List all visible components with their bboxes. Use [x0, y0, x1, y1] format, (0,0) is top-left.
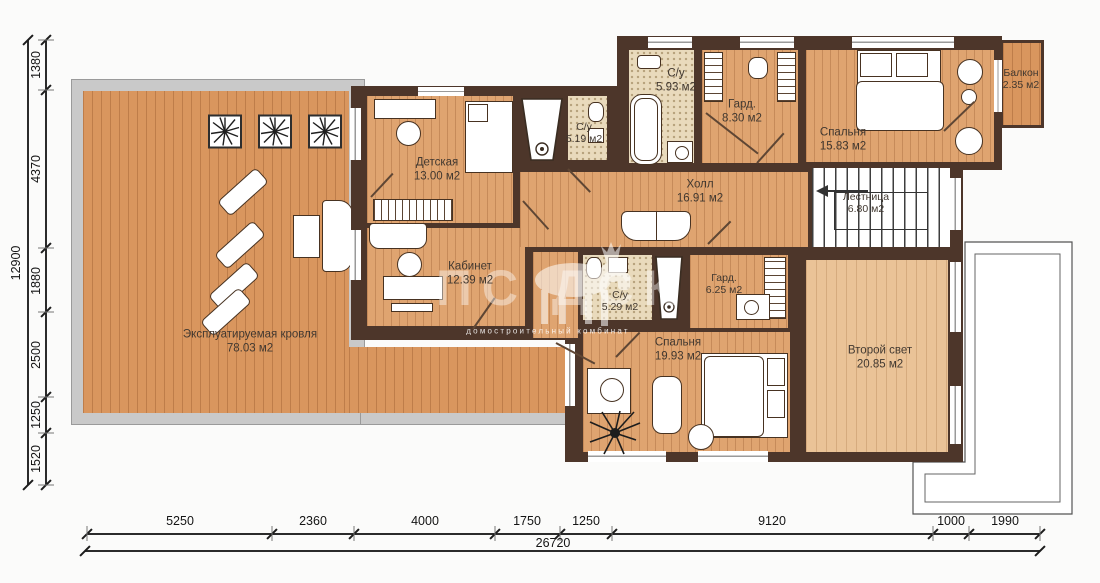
room-area: 5.29 м2 — [602, 301, 638, 313]
room-name: Гард. — [722, 99, 762, 113]
window — [950, 262, 961, 332]
room-name: Спальня — [655, 337, 701, 351]
dim-stub — [38, 248, 54, 249]
room-area: 16.91 м2 — [677, 192, 723, 206]
dim-label: 4000 — [411, 514, 439, 528]
dim-stub — [933, 526, 934, 541]
room-label-hall: Холл 16.91 м2 — [677, 179, 723, 206]
dim-stub — [495, 526, 496, 541]
window — [350, 108, 361, 160]
bench — [391, 303, 433, 312]
skylight-icon — [258, 114, 292, 149]
room-label-gard-625: Гард. 6.25 м2 — [706, 272, 742, 296]
window — [950, 178, 961, 230]
stool — [744, 300, 759, 315]
dim-stub — [272, 526, 273, 541]
room-area: 78.03 м2 — [183, 342, 317, 356]
dim-label-bottom-total: 26720 — [536, 536, 571, 550]
room-name: Холл — [677, 179, 723, 193]
room-area: 6.80 м2 — [843, 203, 889, 215]
sofa — [621, 211, 691, 241]
bed-double — [857, 50, 941, 130]
plant-icon — [586, 408, 644, 458]
desk — [383, 276, 443, 300]
watermark-moose-icon — [515, 238, 635, 333]
dim-stub — [38, 40, 54, 41]
room-name: Лестница — [843, 191, 889, 203]
dim-label: 1520 — [29, 445, 43, 473]
dim-label: 2360 — [299, 514, 327, 528]
dim-stub — [38, 485, 54, 486]
bathtub — [630, 94, 662, 165]
room-area: 15.83 м2 — [820, 140, 866, 154]
room-label-bedroom-1583: Спальня 15.83 м2 — [820, 127, 866, 154]
window — [648, 37, 692, 48]
room-label-su-593: С/у 5.93 м2 — [656, 68, 696, 95]
dim-label: 1750 — [513, 514, 541, 528]
dim-label: 1990 — [991, 514, 1019, 528]
pillow — [468, 104, 488, 122]
window — [950, 386, 961, 444]
room-name: С/у — [566, 121, 602, 133]
room-name: Второй свет — [848, 345, 912, 359]
stairs-arrow-icon — [816, 185, 828, 197]
skylight-icon — [208, 114, 242, 149]
room-name: Кабинет — [447, 261, 493, 275]
dim-stub — [87, 526, 88, 541]
dim-label: 1250 — [572, 514, 600, 528]
room-label-balcony: Балкон 2.35 м2 — [1003, 67, 1039, 91]
dim-stub — [1040, 526, 1041, 541]
dim-stub — [969, 526, 970, 541]
room-area: 2.35 м2 — [1003, 79, 1039, 91]
armchair — [955, 127, 983, 155]
dim-line-bottom-total — [85, 550, 1040, 552]
dim-label-left-total: 12900 — [9, 246, 23, 281]
dim-stub — [38, 90, 54, 91]
dim-stub — [38, 397, 54, 398]
room-area: 13.00 м2 — [414, 170, 460, 184]
room-name: С/у — [656, 68, 696, 82]
terrace-floor-strip — [349, 347, 565, 413]
bed-double — [701, 353, 788, 438]
wardrobe — [373, 199, 453, 221]
sofa — [369, 223, 427, 249]
room-name: Эксплуатируемая кровля — [183, 329, 317, 343]
room-label-kabinet: Кабинет 12.39 м2 — [447, 261, 493, 288]
room-area: 6.25 м2 — [706, 284, 742, 296]
floor-plan: ПС ДСК домостроительный комбинат Эксплуа… — [0, 0, 1100, 583]
dim-line-bottom-chain — [87, 533, 1040, 535]
washing-machine — [667, 141, 693, 163]
armchair — [957, 59, 983, 85]
room-label-su-519: С/у 5.19 м2 — [566, 121, 602, 145]
room-label-terrace: Эксплуатируемая кровля 78.03 м2 — [183, 329, 317, 356]
dim-label: 4370 — [29, 155, 43, 183]
room-area: 8.30 м2 — [722, 112, 762, 126]
room-name: Балкон — [1003, 67, 1039, 79]
dim-stub — [612, 526, 613, 541]
armchair — [652, 376, 682, 434]
dim-label: 5250 — [166, 514, 194, 528]
chair — [397, 252, 422, 277]
room-label-su-529: С/у 5.29 м2 — [602, 289, 638, 313]
room-label-gard-830: Гард. 8.30 м2 — [722, 99, 762, 126]
dim-label: 2500 — [29, 341, 43, 369]
toilet — [588, 102, 604, 122]
clothes-rack — [777, 52, 796, 102]
room-name: Гард. — [706, 272, 742, 284]
window — [418, 87, 464, 96]
dim-label: 1250 — [29, 401, 43, 429]
room-label-bedroom-1993: Спальня 19.93 м2 — [655, 337, 701, 364]
room-label-second-light: Второй свет 20.85 м2 — [848, 345, 912, 372]
stool — [748, 57, 768, 79]
room-name: С/у — [602, 289, 638, 301]
dim-label: 1000 — [937, 514, 965, 528]
room-label-stairs: Лестница 6.80 м2 — [843, 191, 889, 215]
dim-stub — [38, 433, 54, 434]
dim-label: 9120 — [758, 514, 786, 528]
window — [740, 37, 794, 48]
window — [698, 451, 768, 462]
desk — [374, 99, 436, 119]
clothes-rack — [704, 52, 723, 102]
room-name: Спальня — [820, 127, 866, 141]
room-area: 19.93 м2 — [655, 350, 701, 364]
dim-label: 1380 — [29, 51, 43, 79]
shower-icon — [520, 97, 564, 163]
chair — [396, 121, 421, 146]
window — [994, 60, 1002, 112]
terrace-table — [293, 215, 320, 258]
room-area: 20.85 м2 — [848, 358, 912, 372]
terrace-sofa — [322, 200, 353, 272]
dim-stub — [354, 526, 355, 541]
watermark-caption: домостроительный комбинат — [466, 327, 629, 336]
dim-stub — [38, 312, 54, 313]
room-area: 12.39 м2 — [447, 274, 493, 288]
window — [852, 37, 954, 48]
terrace-parapet-bottom — [360, 411, 568, 425]
dim-label: 1880 — [29, 267, 43, 295]
room-name: Детская — [414, 157, 460, 171]
chair — [688, 424, 714, 450]
room-label-detskaya: Детская 13.00 м2 — [414, 157, 460, 184]
window — [350, 230, 361, 280]
dim-line-left-chain — [45, 40, 47, 485]
room-area: 5.93 м2 — [656, 81, 696, 95]
room-area: 5.19 м2 — [566, 133, 602, 145]
skylight-icon — [308, 114, 342, 149]
chair — [600, 378, 624, 402]
